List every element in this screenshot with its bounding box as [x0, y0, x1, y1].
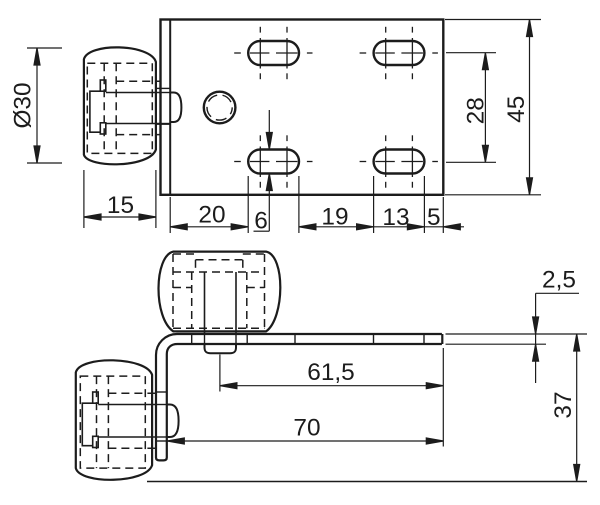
- svg-text:2,5: 2,5: [542, 267, 576, 294]
- svg-text:Ø30: Ø30: [10, 82, 37, 128]
- svg-text:61,5: 61,5: [307, 359, 354, 386]
- svg-text:20: 20: [198, 202, 225, 229]
- svg-text:28: 28: [462, 97, 489, 124]
- svg-text:13: 13: [382, 204, 409, 231]
- svg-text:37: 37: [550, 391, 577, 418]
- svg-text:6: 6: [254, 208, 268, 235]
- svg-text:15: 15: [107, 192, 134, 219]
- svg-text:45: 45: [503, 96, 530, 123]
- svg-text:19: 19: [321, 204, 348, 231]
- svg-text:70: 70: [293, 415, 320, 442]
- svg-text:5: 5: [427, 204, 441, 231]
